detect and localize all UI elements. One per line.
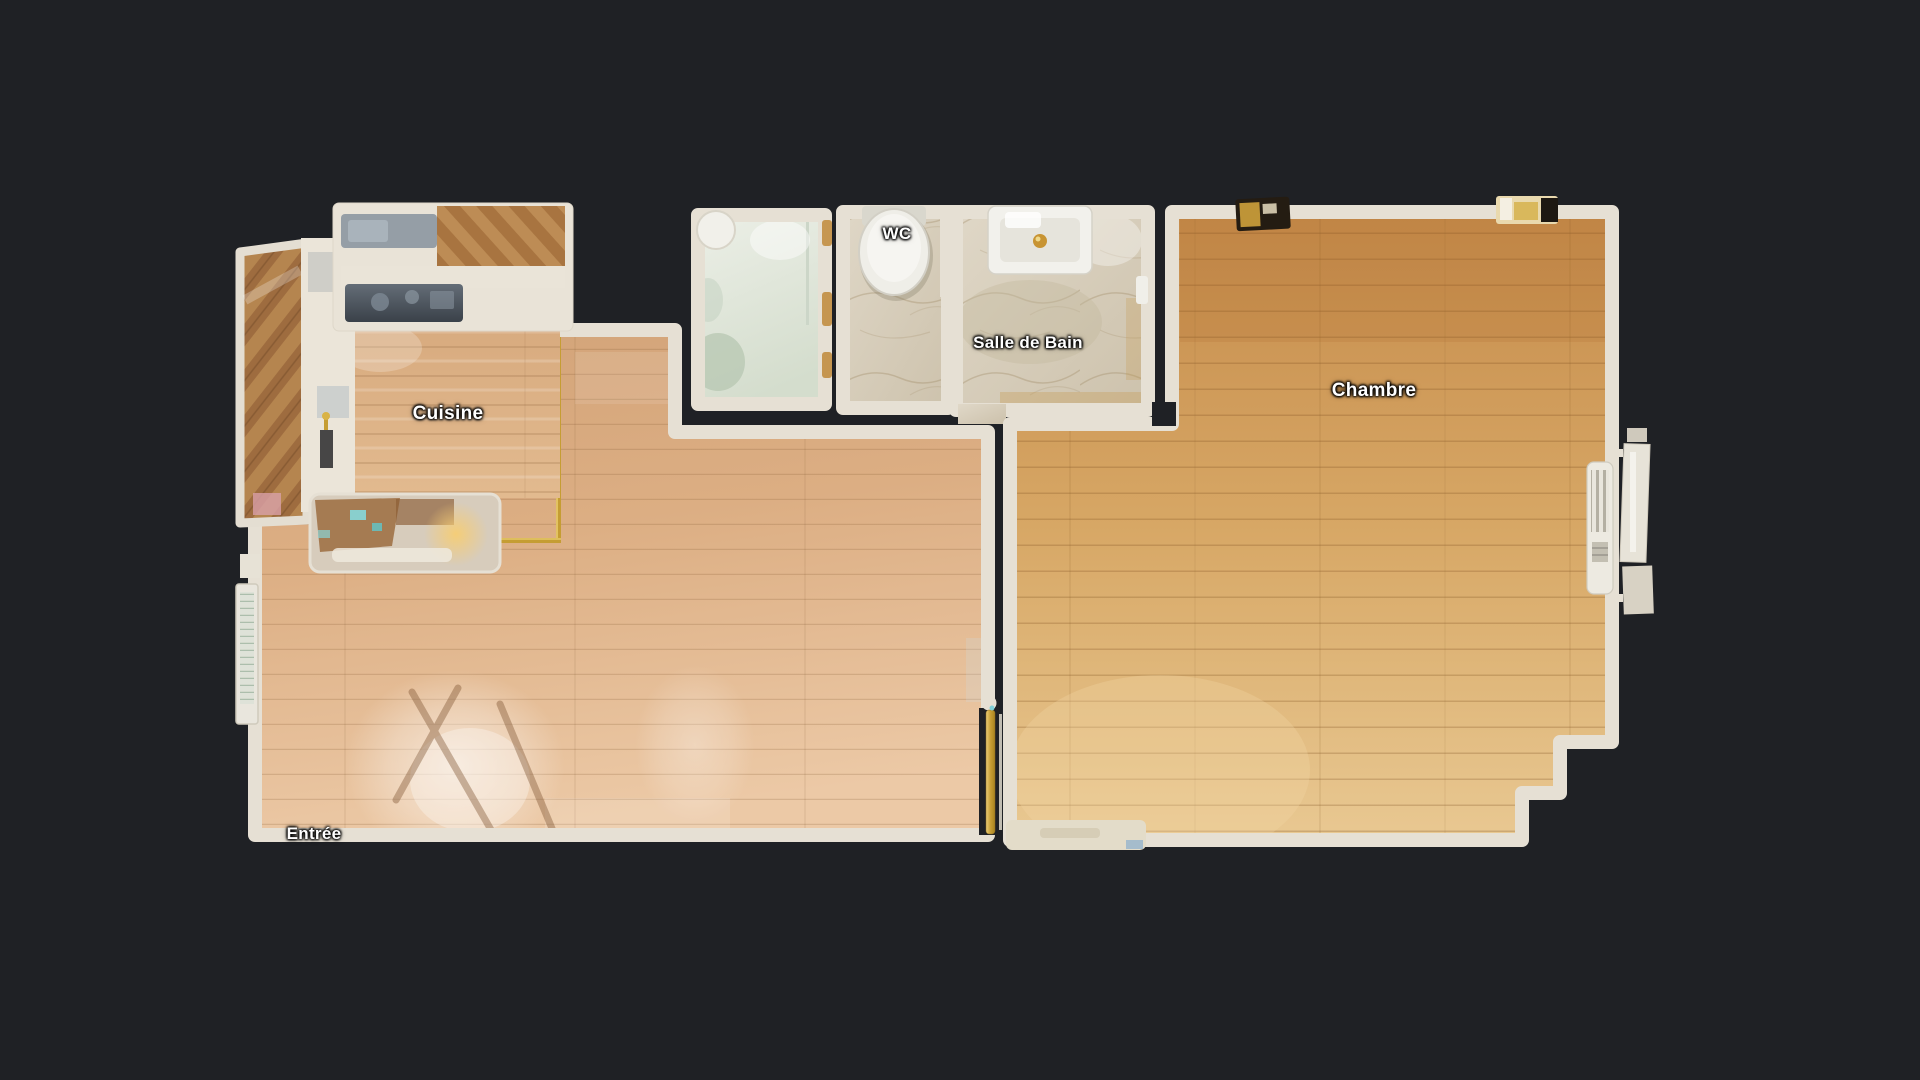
room-bathroom[interactable] xyxy=(940,205,1155,424)
radiator xyxy=(1587,462,1613,594)
gold-wall-streaks xyxy=(822,220,832,378)
wall-decor-2 xyxy=(1496,196,1558,224)
window-glass xyxy=(1630,452,1636,552)
wall-decor-1 xyxy=(1235,197,1291,232)
bathroom-sink xyxy=(988,206,1092,274)
wall-fixture xyxy=(1136,276,1148,304)
wall-notch xyxy=(1152,402,1176,426)
toilet xyxy=(859,206,933,301)
kitchen-counter xyxy=(333,203,573,331)
pink-artifact xyxy=(253,493,281,515)
door-jamb xyxy=(999,714,1002,830)
water-heater-column xyxy=(697,211,735,249)
tall-cabinet xyxy=(240,243,307,523)
marble-threshold xyxy=(958,404,1006,424)
room-wc[interactable] xyxy=(836,205,956,415)
cooktop xyxy=(345,284,463,322)
wc-divider-wall xyxy=(940,205,956,297)
kitchen-floor xyxy=(338,324,560,498)
room-shower[interactable] xyxy=(691,208,832,408)
open-door-leaf xyxy=(986,710,995,834)
gold-faucet xyxy=(1033,234,1047,248)
floorplan-stage[interactable]: Cuisine WC Salle de Bain Chambre Entrée xyxy=(0,0,1920,1080)
blue-artifact xyxy=(1126,840,1143,849)
island-counter xyxy=(310,494,500,572)
bottom-wall-cabinet xyxy=(1006,820,1146,850)
floorplan-canvas[interactable] xyxy=(0,0,1920,1080)
